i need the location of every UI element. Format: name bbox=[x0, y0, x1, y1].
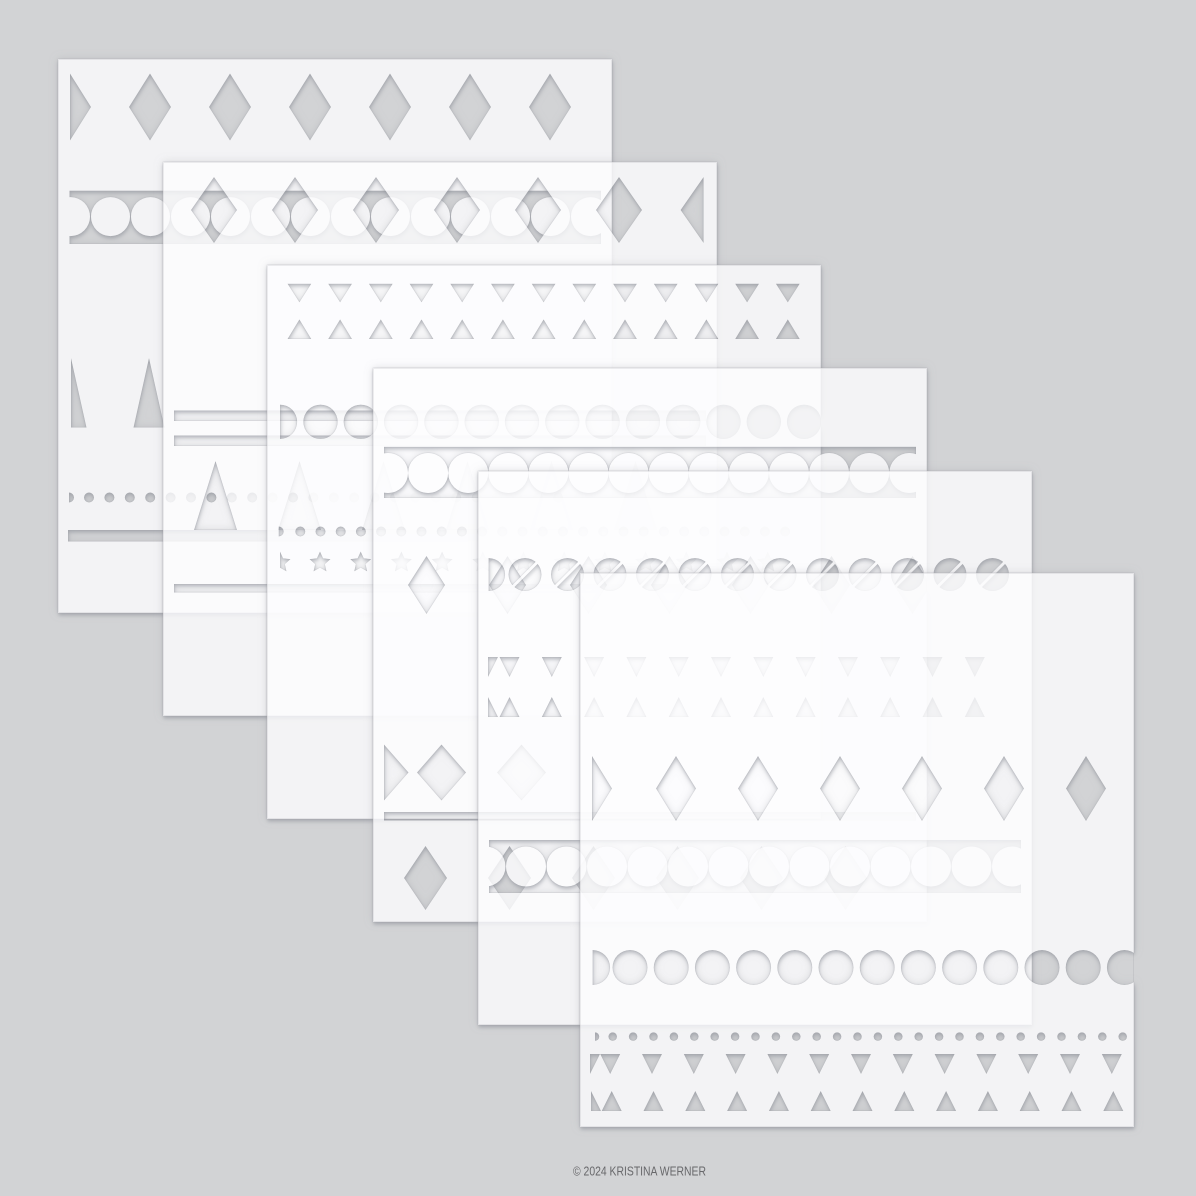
svg-text:© 2024 KRISTINA WERNER: © 2024 KRISTINA WERNER bbox=[573, 1164, 706, 1179]
